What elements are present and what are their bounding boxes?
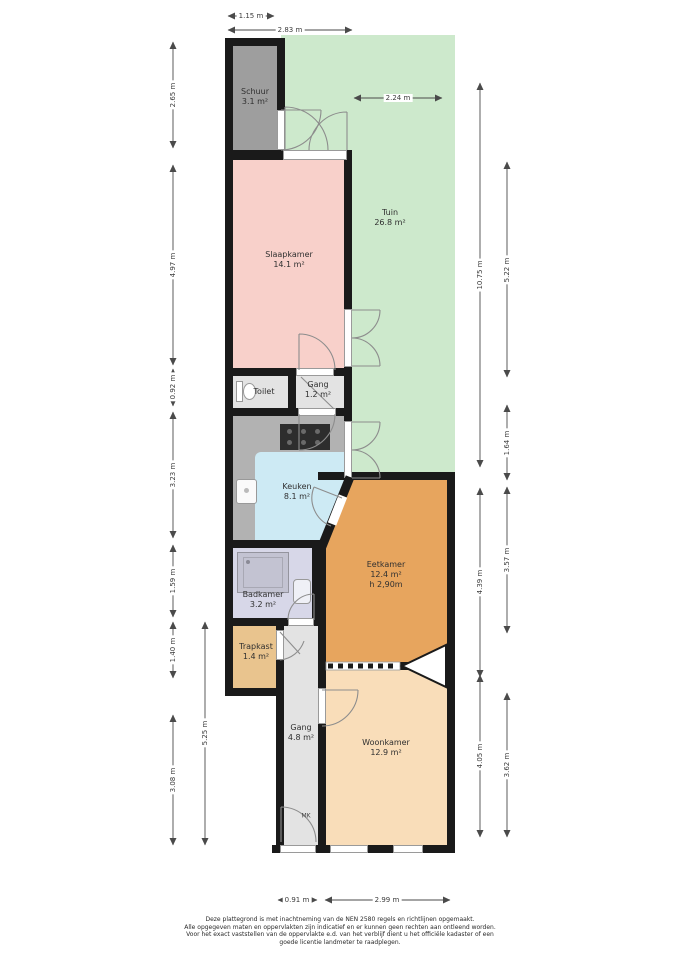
room-label-slaapkamer: Slaapkamer14.1 m² <box>265 250 313 270</box>
door-gap-slaapkamer <box>296 368 334 376</box>
wall-keuken-bottom <box>225 540 320 548</box>
door-gap-keuken <box>298 408 336 416</box>
dim-label-522: 5.22 m <box>503 256 511 285</box>
door-gap-keuken-tuin <box>344 421 352 478</box>
dim-label-357: 3.57 m <box>503 546 511 575</box>
dim-label-164: 1.64 m <box>503 429 511 458</box>
stove <box>280 424 330 450</box>
stove-burner-6 <box>315 440 320 445</box>
room-label-woonkamer: Woonkamer12.9 m² <box>362 738 410 758</box>
room-label-gang-klein: Gang1.2 m² <box>305 380 331 400</box>
dim-label-159: 1.59 m <box>169 567 177 596</box>
wall-schuur-right <box>277 38 285 110</box>
stove-burner-5 <box>301 440 306 445</box>
washbasin <box>293 579 311 604</box>
toilet-tank <box>236 381 243 402</box>
door-gap-badkamer <box>288 618 314 626</box>
disclaimer-line-1: Deze plattegrond is met inachtneming van… <box>110 916 570 924</box>
dim-label-140: 1.40 m <box>169 636 177 665</box>
dim-label-308: 3.08 m <box>169 766 177 795</box>
room-label-keuken: Keuken8.1 m² <box>282 482 311 502</box>
stove-burner-3 <box>315 429 320 434</box>
room-label-schuur: Schuur3.1 m² <box>241 87 269 107</box>
dim-label-265: 2.65 m <box>169 81 177 110</box>
room-label-gang: Gang4.8 m² <box>288 723 314 743</box>
wall-schuur-top <box>225 38 285 46</box>
room-label-badkamer: Badkamer3.2 m² <box>243 590 284 610</box>
stove-burner-1 <box>287 429 292 434</box>
dim-label-497: 4.97 m <box>169 251 177 280</box>
dim-label-362: 3.62 m <box>503 751 511 780</box>
door-gap-slaapkamer-tuin <box>344 309 352 367</box>
door-gap-voordeur <box>280 845 316 853</box>
room-label-trapkast: Trapkast1.4 m² <box>239 642 273 662</box>
door-gap-woonkamer <box>318 688 326 724</box>
wall-eetkamer-top <box>318 472 455 480</box>
stove-burner-4 <box>287 440 292 445</box>
dim-label-323: 3.23 m <box>169 461 177 490</box>
door-gap-trapkast <box>276 630 284 660</box>
wall-left-outer <box>225 38 233 696</box>
dim-label-224: 2.24 m <box>384 94 413 102</box>
dim-label-115: 1.15 m <box>237 12 266 20</box>
dim-label-092: 0.92 m <box>169 373 177 402</box>
dim-label-1075: 10.75 m <box>476 258 484 291</box>
dim-label-525: 5.25 m <box>201 719 209 748</box>
wall-right-outer <box>447 472 455 853</box>
window-woonkamer-1 <box>330 845 368 853</box>
door-gap-schuur <box>277 110 285 150</box>
room-label-tuin: Tuin26.8 m² <box>374 208 405 228</box>
disclaimer-line-3: Voor het exact vaststellen van de opperv… <box>110 931 570 939</box>
shower-drain <box>246 560 250 564</box>
dim-label-091: 0.91 m <box>283 896 312 904</box>
disclaimer-text: Deze plattegrond is met inachtneming van… <box>110 916 570 946</box>
disclaimer-line-4: goede licentie landmeter te raadplegen. <box>110 939 570 947</box>
room-fill-tuin-top <box>281 35 455 150</box>
room-label-toilet: Toilet <box>254 387 275 397</box>
wall-eetkamer-woonkamer <box>326 662 447 670</box>
dim-label-439: 4.39 m <box>476 568 484 597</box>
window-woonkamer-2 <box>393 845 423 853</box>
disclaimer-line-2: Alle opgegeven maten en oppervlakten zij… <box>110 924 570 932</box>
door-gap-garden-doors <box>283 150 347 160</box>
meterkast-label: MK <box>301 813 310 820</box>
dim-label-405: 4.05 m <box>476 742 484 771</box>
kitchen-sink-drain <box>244 488 249 493</box>
dim-label-299: 2.99 m <box>373 896 402 904</box>
room-fill-tuin-side <box>352 150 455 480</box>
wall-toilet-gang <box>288 376 296 408</box>
floorplan-canvas: Schuur3.1 m² Tuin26.8 m² Slaapkamer14.1 … <box>0 0 679 960</box>
stove-burner-2 <box>301 429 306 434</box>
room-label-eetkamer: Eetkamer12.4 m²h 2,90m <box>367 560 406 590</box>
dim-label-283: 2.83 m <box>276 26 305 34</box>
